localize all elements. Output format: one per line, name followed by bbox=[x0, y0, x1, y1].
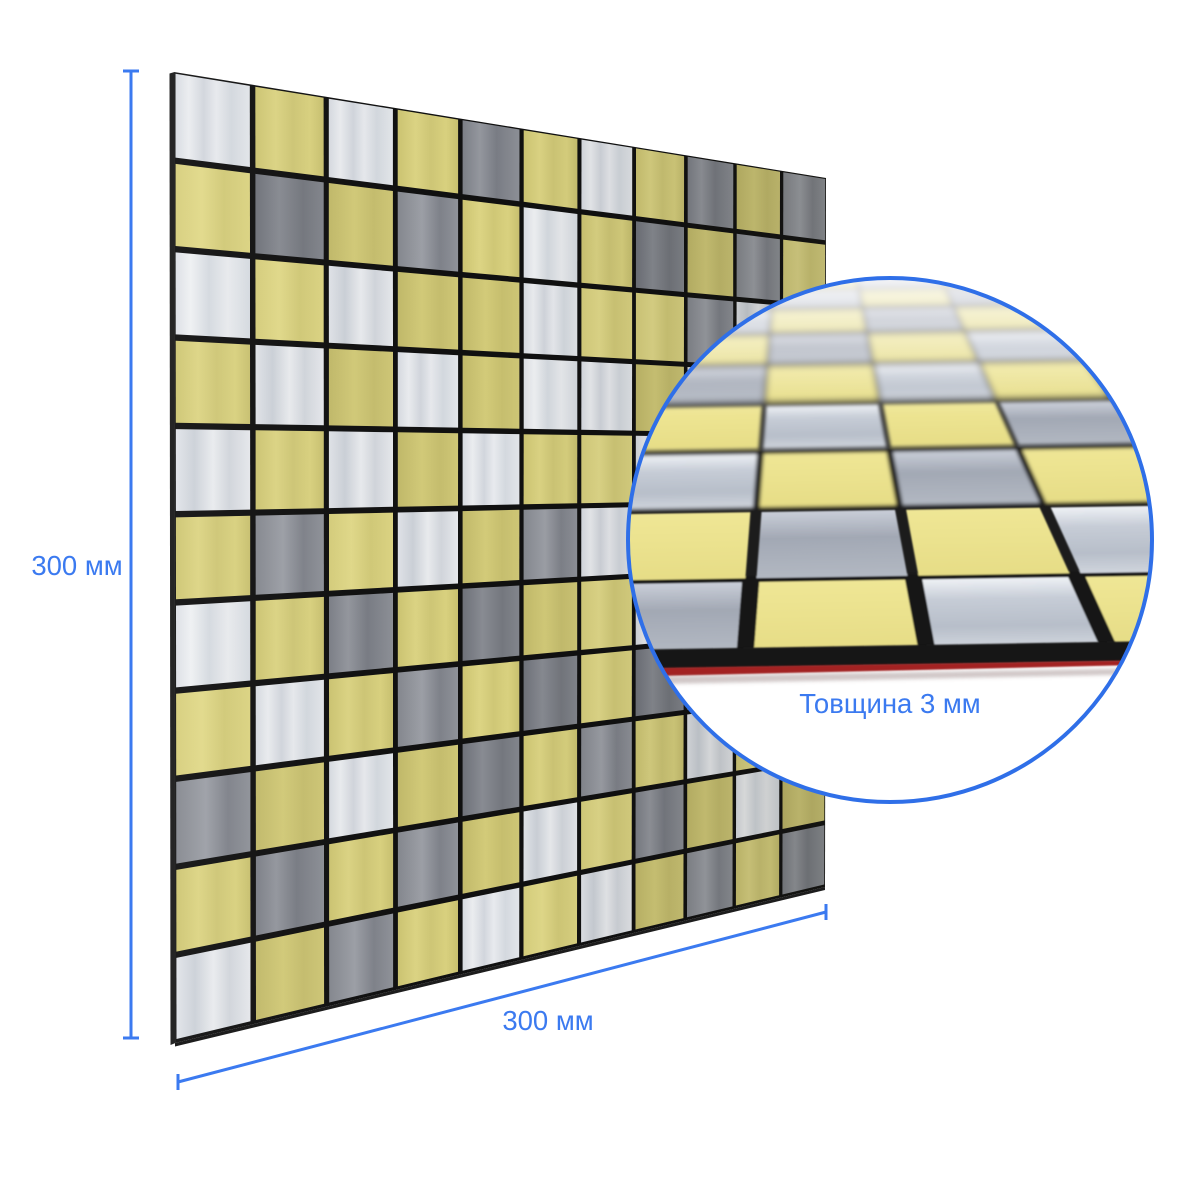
svg-text:Товщина 3 мм: Товщина 3 мм bbox=[799, 688, 980, 719]
svg-text:300 мм: 300 мм bbox=[502, 1005, 593, 1036]
svg-text:300 мм: 300 мм bbox=[31, 550, 122, 581]
